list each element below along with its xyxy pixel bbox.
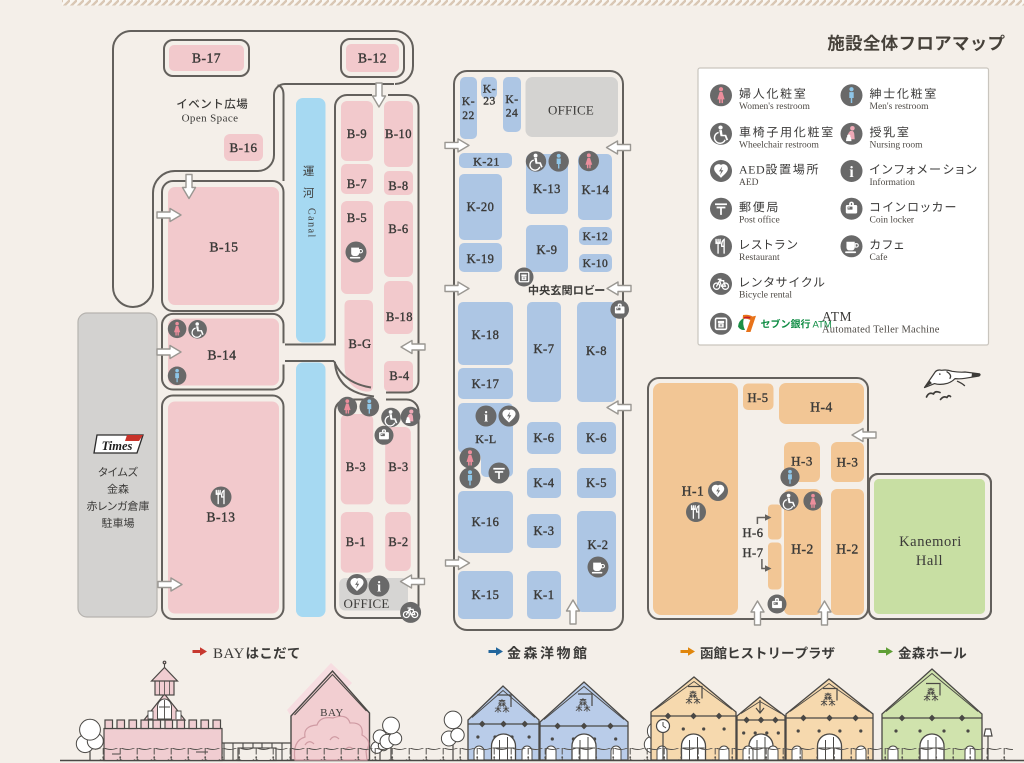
svg-text:Times: Times	[102, 439, 133, 453]
svg-text:B-1: B-1	[346, 535, 366, 549]
svg-text:K-1: K-1	[534, 588, 555, 602]
svg-text:H-2: H-2	[791, 542, 814, 557]
svg-text:Coin locker: Coin locker	[870, 216, 915, 226]
svg-text:H-3: H-3	[837, 454, 859, 469]
svg-text:Wheelchair restroom: Wheelchair restroom	[739, 141, 820, 151]
svg-text:K-12: K-12	[583, 231, 609, 243]
svg-text:Nursing room: Nursing room	[870, 141, 924, 151]
svg-text:Open Space: Open Space	[182, 113, 239, 125]
svg-text:Cafe: Cafe	[870, 252, 888, 263]
svg-text:B-16: B-16	[230, 140, 258, 155]
svg-text:BAY: BAY	[213, 646, 245, 662]
svg-text:K-: K-	[505, 94, 518, 106]
svg-text:K-13: K-13	[533, 182, 561, 196]
svg-text:B-15: B-15	[210, 240, 239, 255]
svg-text:K-: K-	[462, 96, 475, 108]
svg-text:B-6: B-6	[388, 222, 408, 236]
svg-text:B-3: B-3	[388, 460, 408, 474]
svg-text:K-6: K-6	[534, 431, 555, 445]
svg-text:K-16: K-16	[472, 515, 500, 529]
svg-text:24: 24	[506, 108, 519, 120]
svg-text:B-7: B-7	[347, 177, 367, 191]
svg-text:OFFICE: OFFICE	[548, 103, 594, 118]
svg-text:K-19: K-19	[467, 252, 495, 266]
svg-text:H-4: H-4	[810, 400, 833, 415]
svg-text:B-3: B-3	[346, 460, 366, 474]
svg-text:K-14: K-14	[582, 183, 610, 197]
svg-text:K-4: K-4	[534, 476, 555, 490]
svg-text:K-17: K-17	[472, 377, 500, 391]
svg-text:Hall: Hall	[916, 553, 943, 569]
svg-text:H-6: H-6	[743, 526, 764, 540]
svg-text:Men's restroom: Men's restroom	[870, 102, 930, 112]
svg-text:B-2: B-2	[388, 535, 408, 549]
svg-text:AED: AED	[739, 178, 759, 188]
svg-text:H-2: H-2	[836, 542, 859, 557]
svg-text:ATM: ATM	[822, 309, 852, 324]
svg-text:B-8: B-8	[388, 179, 408, 193]
svg-text:OFFICE: OFFICE	[344, 596, 390, 611]
svg-text:Bicycle rental: Bicycle rental	[739, 291, 792, 301]
svg-text:Automated Teller Machine: Automated Teller Machine	[822, 325, 940, 336]
svg-text:K-21: K-21	[473, 155, 500, 169]
svg-text:Post office: Post office	[739, 215, 780, 226]
svg-text:H-7: H-7	[743, 546, 764, 560]
svg-text:Information: Information	[870, 177, 916, 188]
svg-text:B-13: B-13	[207, 510, 236, 525]
svg-text:B-G: B-G	[348, 337, 371, 351]
svg-text:B-5: B-5	[347, 211, 367, 225]
svg-text:B-4: B-4	[389, 369, 410, 383]
svg-text:K-2: K-2	[588, 538, 609, 552]
svg-text:Canal: Canal	[306, 208, 317, 239]
svg-text:K-9: K-9	[537, 243, 558, 257]
svg-text:K-6: K-6	[586, 431, 607, 445]
svg-text:K-3: K-3	[534, 524, 555, 538]
svg-text:K-7: K-7	[534, 342, 555, 356]
svg-text:B-9: B-9	[347, 127, 367, 141]
svg-text:K-18: K-18	[472, 328, 500, 342]
svg-text:Restaurant: Restaurant	[739, 253, 780, 263]
svg-text:23: 23	[483, 96, 496, 108]
svg-text:Women's restroom: Women's restroom	[739, 102, 810, 112]
svg-text:AED: AED	[739, 163, 765, 177]
svg-text:K-20: K-20	[467, 200, 495, 214]
svg-text:K-L: K-L	[475, 432, 497, 446]
svg-text:K-15: K-15	[472, 588, 500, 602]
svg-text:H-1: H-1	[682, 484, 705, 499]
svg-text:K-10: K-10	[583, 258, 609, 270]
svg-text:Kanemori: Kanemori	[899, 534, 962, 550]
svg-text:B-14: B-14	[208, 348, 237, 363]
svg-text:K-8: K-8	[586, 344, 607, 358]
svg-text:B-17: B-17	[192, 51, 221, 66]
svg-text:B-10: B-10	[385, 127, 412, 141]
svg-text:K-: K-	[483, 84, 496, 96]
svg-text:H-3: H-3	[791, 453, 813, 468]
svg-text:H-5: H-5	[748, 391, 769, 405]
svg-text:K-5: K-5	[586, 476, 607, 490]
svg-text:22: 22	[462, 110, 475, 122]
svg-text:B-12: B-12	[358, 51, 387, 66]
svg-text:B-18: B-18	[386, 310, 413, 324]
